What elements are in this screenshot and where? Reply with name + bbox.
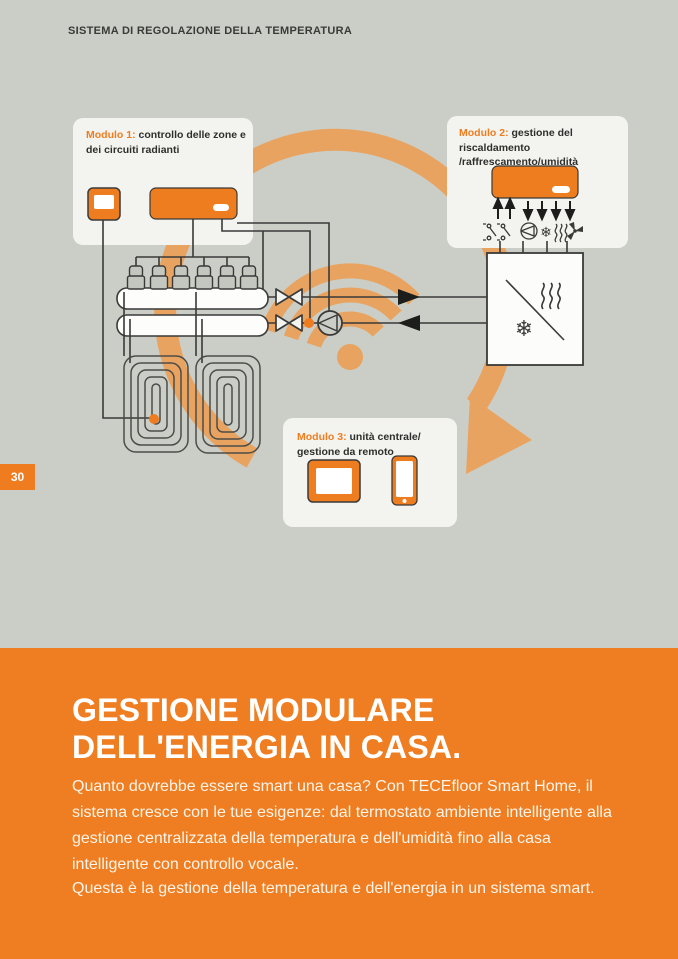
footer-title-line2: DELL'ENERGIA IN CASA. <box>72 729 461 765</box>
footer-paragraph-1: Quanto dovrebbe essere smart una casa? C… <box>72 774 620 878</box>
floor-sensor-dot <box>149 414 159 424</box>
module1-label: Modulo 1: controllo delle zone e dei cir… <box>86 128 250 157</box>
smartphone <box>392 456 417 505</box>
zone-actuators <box>128 266 258 289</box>
footer-paragraph-2: Questa è la gestione della temperatura e… <box>72 876 620 902</box>
footer-title-line1: GESTIONE MODULARE <box>72 692 435 728</box>
climate-controller <box>492 166 578 198</box>
wiring-center <box>150 188 237 219</box>
footer-section: GESTIONE MODULARE DELL'ENERGIA IN CASA. … <box>0 648 678 959</box>
cooling-snowflake-icon: ❄ <box>515 317 533 342</box>
module3-label: Modulo 3: unità centrale/ gestione da re… <box>297 430 447 459</box>
snowflake-icon: ❄ <box>540 225 552 241</box>
system-diagram: ❄ ❄ <box>0 0 678 650</box>
footer-title: GESTIONE MODULARE DELL'ENERGIA IN CASA. <box>72 692 552 766</box>
return-arrow-icon <box>398 315 420 331</box>
room-thermostat <box>88 188 120 220</box>
pump-icon <box>318 311 342 335</box>
module1-number: Modulo 1: <box>86 129 136 141</box>
module2-label: Modulo 2: gestione del riscaldamento /ra… <box>459 126 623 170</box>
brochure-page: SISTEMA DI REGOLAZIONE DELLA TEMPERATURA… <box>0 0 678 959</box>
module3-number: Modulo 3: <box>297 431 347 443</box>
central-unit-tablet <box>308 460 360 502</box>
manifold <box>117 288 268 363</box>
heating-cooling-unit: ❄ <box>487 253 583 365</box>
return-sensor-dot <box>304 318 314 328</box>
module2-number: Modulo 2: <box>459 127 509 139</box>
